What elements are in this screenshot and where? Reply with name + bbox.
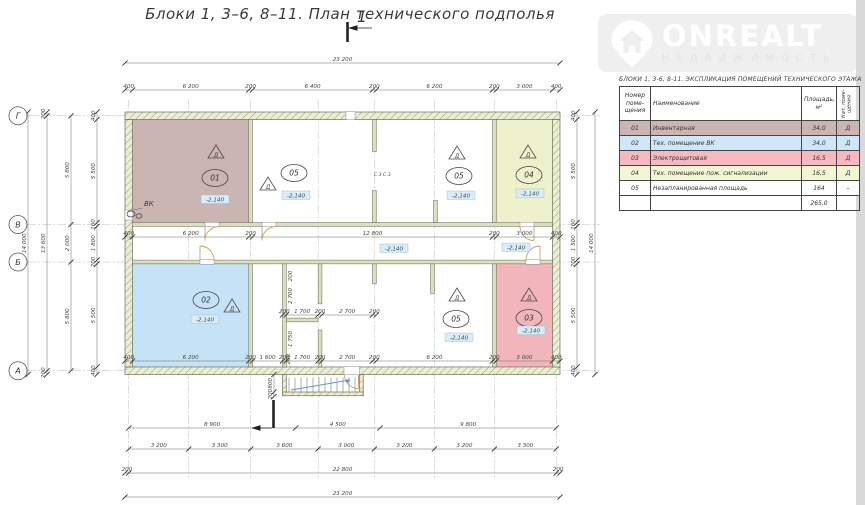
- explication-cell: [837, 196, 860, 211]
- explication-table: БЛОКИ 1, 3-6, 8-11. ЭКСПЛИКАЦИЯ ПОМЕЩЕНИ…: [619, 76, 852, 211]
- svg-text:-2,140: -2,140: [385, 247, 403, 253]
- svg-text:200: 200: [41, 367, 47, 378]
- svg-text:200: 200: [369, 84, 380, 90]
- svg-text:Г: Г: [16, 112, 21, 121]
- svg-text:1 700: 1 700: [294, 355, 310, 361]
- svg-text:-2,140: -2,140: [522, 329, 540, 335]
- explication-cell: 16,5: [802, 166, 837, 181]
- svg-text:6 200: 6 200: [426, 84, 442, 90]
- explication-cell: Д: [837, 166, 860, 181]
- explication-cell: 03: [620, 151, 651, 166]
- svg-text:400: 400: [123, 84, 134, 90]
- explication-cell: 05: [620, 181, 651, 196]
- svg-text:3 200: 3 200: [396, 443, 412, 449]
- svg-text:200: 200: [489, 231, 500, 237]
- svg-text:2 700: 2 700: [339, 355, 355, 361]
- svg-text:200: 200: [279, 309, 290, 315]
- svg-text:-2,140: -2,140: [287, 194, 305, 200]
- svg-text:1 800: 1 800: [91, 235, 97, 251]
- svg-text:Д: Д: [229, 307, 235, 313]
- watermark-brand: ONREALT: [662, 22, 837, 51]
- svg-text:23 200: 23 200: [333, 491, 353, 497]
- svg-text:400: 400: [551, 355, 562, 361]
- svg-text:400: 400: [551, 84, 562, 90]
- room-02-vk: [133, 264, 249, 367]
- svg-text:5 800: 5 800: [65, 308, 71, 324]
- svg-text:400: 400: [571, 110, 577, 121]
- explication-cell: 265,0: [802, 196, 837, 211]
- svg-text:22 800: 22 800: [333, 467, 353, 473]
- header-category: Кат. поме- щения: [837, 87, 860, 121]
- svg-text:ВК: ВК: [144, 200, 155, 208]
- header-area: Площадь, м²: [802, 87, 837, 121]
- svg-text:3 300: 3 300: [517, 443, 533, 449]
- explication-cell: 34,0: [802, 121, 837, 136]
- svg-text:2 000: 2 000: [65, 235, 71, 251]
- svg-text:200: 200: [369, 309, 380, 315]
- table-header-row: Номер поме- щения Наименование Площадь, …: [620, 87, 860, 121]
- svg-text:3 300: 3 300: [212, 443, 228, 449]
- watermark-subtitle: НЕДВИЖИМОСТЬ: [662, 53, 837, 64]
- explication-cell: Инвентарная: [651, 121, 802, 136]
- svg-text:3 200: 3 200: [151, 443, 167, 449]
- explication-cell: Д: [837, 121, 860, 136]
- house-pin-icon: [606, 17, 658, 69]
- explication-cell: [620, 196, 651, 211]
- svg-text:200: 200: [571, 256, 577, 267]
- explication-cell: Незапланированная площадь: [651, 181, 802, 196]
- svg-text:3 000: 3 000: [516, 231, 532, 237]
- explication-row: 02Тех. помещение ВК34,0Д: [620, 136, 860, 151]
- svg-text:1 600: 1 600: [259, 355, 275, 361]
- svg-text:200: 200: [553, 467, 564, 473]
- svg-text:400: 400: [91, 110, 97, 121]
- svg-text:03: 03: [524, 314, 534, 323]
- svg-text:800: 800: [268, 377, 274, 388]
- header-room-number: Номер поме- щения: [620, 87, 651, 121]
- svg-text:400: 400: [123, 231, 134, 237]
- svg-text:200: 200: [245, 355, 256, 361]
- svg-text:200: 200: [489, 84, 500, 90]
- svg-text:3 600: 3 600: [276, 443, 292, 449]
- room-fills: [133, 120, 553, 367]
- svg-text:200: 200: [268, 388, 274, 399]
- svg-text:02: 02: [201, 296, 211, 305]
- svg-text:Д: Д: [525, 153, 531, 159]
- svg-text:Д: Д: [454, 296, 460, 302]
- svg-text:200: 200: [288, 270, 294, 281]
- svg-text:3 000: 3 000: [516, 355, 532, 361]
- svg-text:9 800: 9 800: [460, 422, 476, 428]
- svg-text:200: 200: [91, 219, 97, 230]
- svg-text:5 500: 5 500: [571, 307, 577, 323]
- explication-cell: [651, 196, 802, 211]
- explication-row: 05Незапланированная площадь164–: [620, 181, 860, 196]
- explication-cell: 16,5: [802, 151, 837, 166]
- svg-text:2 700: 2 700: [339, 309, 355, 315]
- svg-text:200: 200: [245, 84, 256, 90]
- svg-text:5 500: 5 500: [91, 163, 97, 179]
- svg-text:6 200: 6 200: [183, 231, 199, 237]
- svg-text:Д: Д: [265, 185, 271, 191]
- explication-cell: Д: [837, 136, 860, 151]
- svg-text:4 500: 4 500: [330, 422, 346, 428]
- svg-text:Д: Д: [213, 153, 219, 159]
- svg-text:200: 200: [315, 309, 326, 315]
- svg-text:5 800: 5 800: [65, 162, 71, 178]
- svg-text:01: 01: [210, 174, 220, 183]
- onrealt-watermark: ONREALT НЕДВИЖИМОСТЬ: [598, 14, 858, 72]
- svg-text:Д: Д: [526, 296, 532, 302]
- staircase: [289, 378, 355, 392]
- svg-text:1: 1: [357, 7, 367, 26]
- svg-text:400: 400: [551, 231, 562, 237]
- svg-text:200: 200: [286, 353, 292, 364]
- svg-text:13 600: 13 600: [41, 233, 47, 253]
- svg-text:200: 200: [369, 355, 380, 361]
- svg-text:12 800: 12 800: [363, 231, 383, 237]
- svg-text:А: А: [14, 367, 20, 376]
- explication-cell: 01: [620, 121, 651, 136]
- explication-cell: 04: [620, 166, 651, 181]
- svg-text:400: 400: [91, 365, 97, 376]
- svg-text:05: 05: [454, 172, 464, 181]
- explication-total-row: 265,0: [620, 196, 860, 211]
- explication-cell: –: [837, 181, 860, 196]
- svg-text:05: 05: [451, 315, 461, 324]
- svg-text:Б: Б: [15, 258, 21, 267]
- svg-text:Д: Д: [454, 154, 460, 160]
- svg-text:-2,140: -2,140: [206, 198, 224, 204]
- svg-text:400: 400: [123, 355, 134, 361]
- svg-text:-2,140: -2,140: [452, 194, 470, 200]
- svg-text:1 700: 1 700: [294, 309, 310, 315]
- svg-text:400: 400: [571, 365, 577, 376]
- svg-text:23 200: 23 200: [333, 57, 353, 63]
- svg-text:-2,140: -2,140: [450, 336, 468, 342]
- svg-text:1 750: 1 750: [288, 331, 294, 347]
- explication-row: 04Тех. помещение пож. сигнализации16,5Д: [620, 166, 860, 181]
- svg-text:200: 200: [91, 256, 97, 267]
- svg-text:1 500: 1 500: [571, 235, 577, 251]
- svg-text:2 700: 2 700: [288, 288, 294, 304]
- explication-row: 03Электрощитовая16,5Д: [620, 151, 860, 166]
- svg-text:6 200: 6 200: [426, 355, 442, 361]
- explication-cell: Д: [837, 151, 860, 166]
- explication-cell: Тех. помещение ВК: [651, 136, 802, 151]
- svg-text:6 200: 6 200: [183, 84, 199, 90]
- svg-text:В: В: [15, 220, 21, 229]
- svg-text:-2,140: -2,140: [507, 246, 525, 252]
- svg-text:14 000: 14 000: [589, 233, 595, 253]
- svg-text:14 000: 14 000: [22, 233, 28, 253]
- header-name: Наименование: [651, 87, 802, 121]
- svg-text:200: 200: [41, 108, 47, 119]
- svg-text:5 500: 5 500: [571, 163, 577, 179]
- explication-cell: Электрощитовая: [651, 151, 802, 166]
- table-title: БЛОКИ 1, 3-6, 8-11. ЭКСПЛИКАЦИЯ ПОМЕЩЕНИ…: [619, 76, 852, 83]
- explication-cell: 02: [620, 136, 651, 151]
- svg-text:200: 200: [122, 467, 133, 473]
- explication-row: 01Инвентарная34,0Д: [620, 121, 860, 136]
- svg-text:3 000: 3 000: [516, 84, 532, 90]
- svg-text:8 900: 8 900: [204, 422, 220, 428]
- explication-cell: 164: [802, 181, 837, 196]
- svg-text:С 3 С 3: С 3 С 3: [374, 172, 391, 178]
- svg-text:-2,140: -2,140: [521, 192, 539, 198]
- svg-text:05: 05: [289, 169, 299, 178]
- svg-text:6 400: 6 400: [304, 84, 320, 90]
- svg-text:3 200: 3 200: [456, 443, 472, 449]
- svg-text:6 200: 6 200: [183, 355, 199, 361]
- svg-text:-2,140: -2,140: [196, 318, 214, 324]
- svg-text:04: 04: [524, 171, 534, 180]
- svg-text:3 000: 3 000: [338, 443, 354, 449]
- svg-text:200: 200: [245, 231, 256, 237]
- svg-text:200: 200: [315, 355, 326, 361]
- svg-text:5 500: 5 500: [91, 307, 97, 323]
- explication-cell: Тех. помещение пож. сигнализации: [651, 166, 802, 181]
- svg-text:200: 200: [489, 355, 500, 361]
- explication-cell: 34,0: [802, 136, 837, 151]
- svg-text:200: 200: [571, 219, 577, 230]
